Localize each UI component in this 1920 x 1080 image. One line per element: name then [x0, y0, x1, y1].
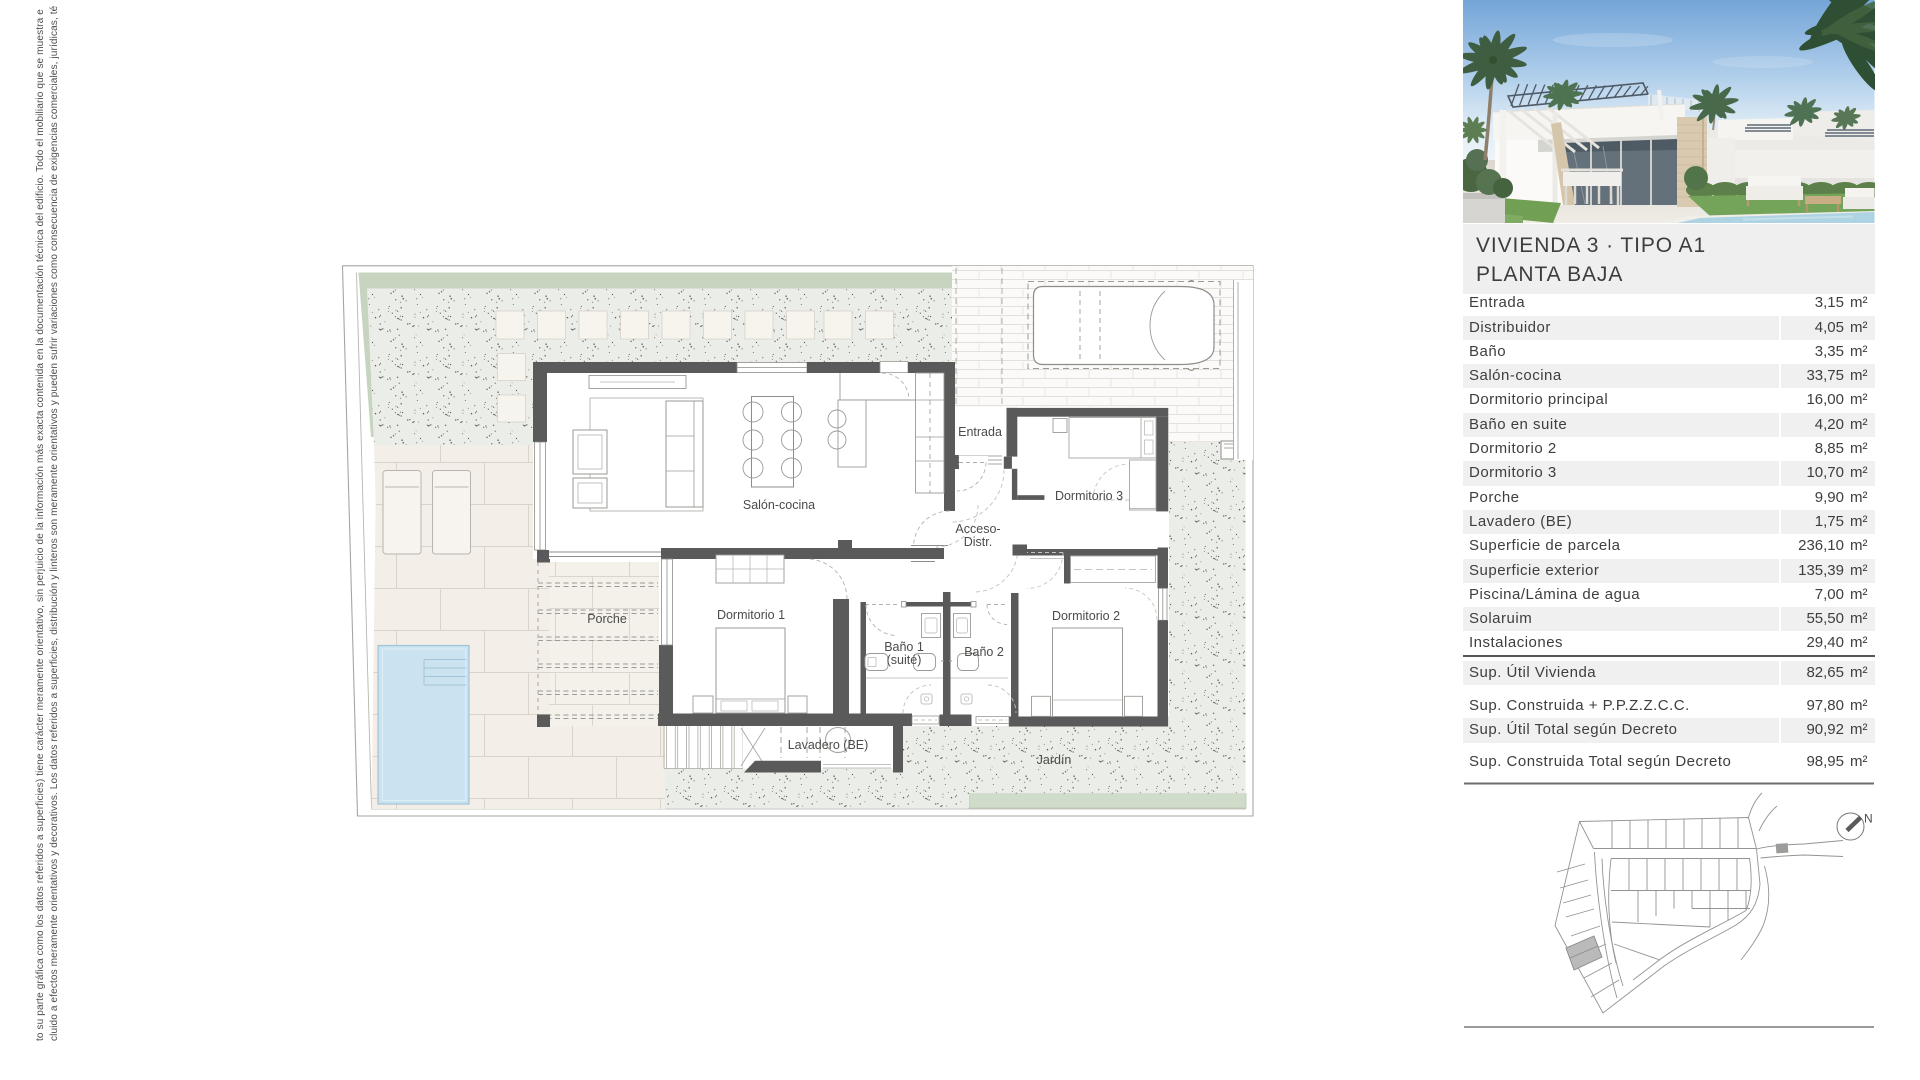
- svg-text:Porche: Porche: [587, 612, 627, 626]
- svg-text:N: N: [1864, 812, 1873, 826]
- svg-text:(suité): (suité): [887, 653, 922, 667]
- svg-text:Dormitorio 3: Dormitorio 3: [1055, 489, 1123, 503]
- svg-text:Baño 1: Baño 1: [884, 640, 924, 654]
- svg-text:Lavadero (BE): Lavadero (BE): [788, 738, 869, 752]
- svg-text:Salón-cocina: Salón-cocina: [743, 498, 815, 512]
- svg-text:Dormitorio 1: Dormitorio 1: [717, 608, 785, 622]
- svg-text:Jardín: Jardín: [1037, 753, 1072, 767]
- svg-text:Acceso-: Acceso-: [955, 522, 1000, 536]
- svg-text:Dormitorio 2: Dormitorio 2: [1052, 609, 1120, 623]
- svg-text:Baño 2: Baño 2: [964, 645, 1004, 659]
- svg-text:Distr.: Distr.: [964, 535, 992, 549]
- svg-text:Entrada: Entrada: [958, 425, 1002, 439]
